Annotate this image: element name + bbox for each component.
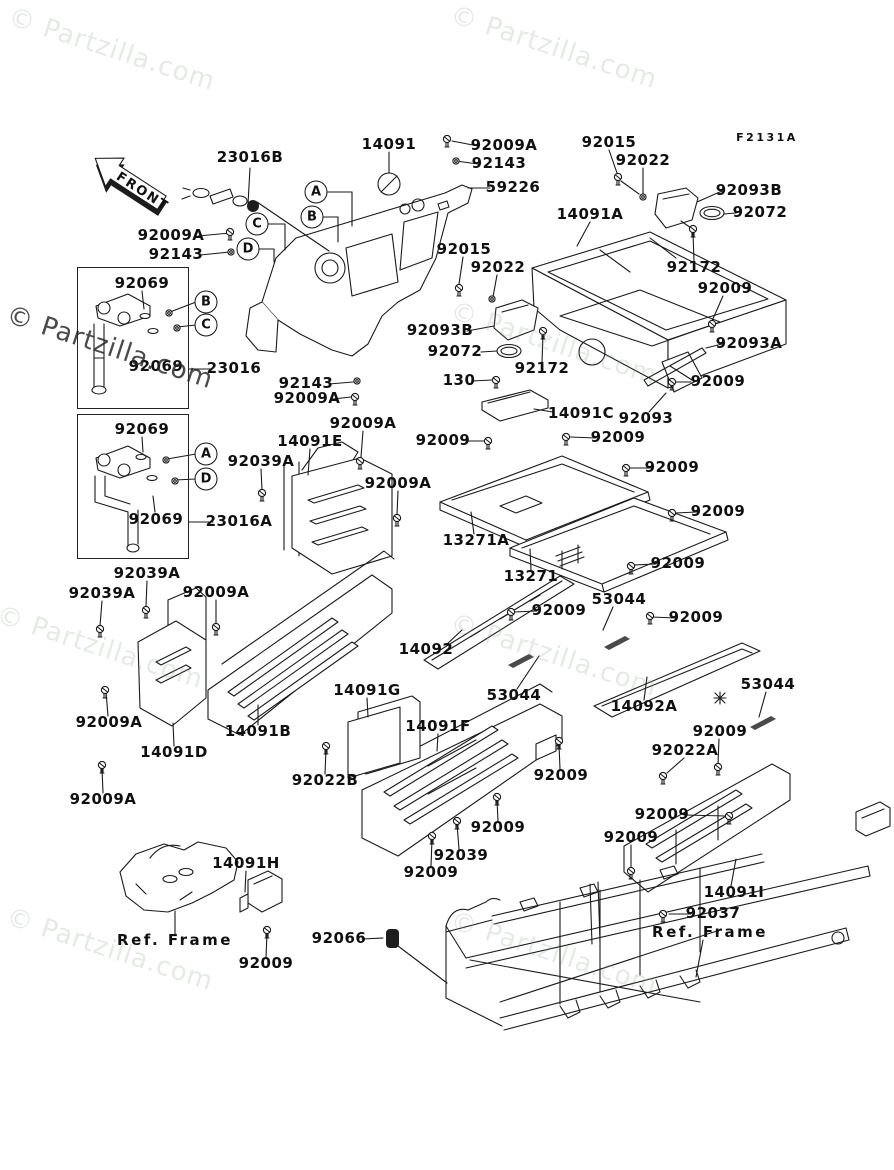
part-label-92009a: 92009A xyxy=(365,476,432,492)
part-label-53044: 53044 xyxy=(592,592,647,608)
callout-a: A xyxy=(195,443,218,466)
part-label-92039a: 92039A xyxy=(114,566,181,582)
part-label-92009: 92009 xyxy=(404,865,459,881)
callout-a: A xyxy=(305,181,328,204)
nut-icon xyxy=(228,249,234,255)
part-label-92069: 92069 xyxy=(129,512,184,528)
nut-icon xyxy=(453,158,459,164)
part-label-92009: 92009 xyxy=(669,610,724,626)
part-label-53044: 53044 xyxy=(487,688,542,704)
part-label-23016a: 23016A xyxy=(206,514,273,530)
screw-icon xyxy=(96,625,103,637)
callout-d: D xyxy=(237,238,260,261)
screw-icon xyxy=(614,173,621,185)
part-label-92009: 92009 xyxy=(604,830,659,846)
callout-c: C xyxy=(195,314,218,337)
part-label-92009a: 92009A xyxy=(330,416,397,432)
part-label-23016b: 23016B xyxy=(217,150,284,166)
part-label-92039a: 92039A xyxy=(69,586,136,602)
callout-d: D xyxy=(195,468,218,491)
part-label-14091e: 14091E xyxy=(277,434,342,450)
part-label-92093b: 92093B xyxy=(407,323,474,339)
part-14091h-bracket-art xyxy=(120,842,282,912)
screw-icon xyxy=(393,514,400,526)
part-label-92009: 92009 xyxy=(471,820,526,836)
part-label-92072: 92072 xyxy=(428,344,483,360)
part-label-130: 130 xyxy=(443,373,476,389)
part-label-14091d: 14091D xyxy=(140,745,208,761)
part-label-92009: 92009 xyxy=(416,433,471,449)
part-label-53044: 53044 xyxy=(741,677,796,693)
screw-icon xyxy=(443,135,450,147)
part-label-92009: 92009 xyxy=(691,504,746,520)
part-label-92009: 92009 xyxy=(645,460,700,476)
screw-icon xyxy=(226,228,233,240)
part-label-92009: 92009 xyxy=(591,430,646,446)
screw-icon xyxy=(258,489,265,501)
part-label-23016: 23016 xyxy=(207,361,262,377)
part-label-ref-frame: Ref. Frame xyxy=(117,933,233,949)
callout-c: C xyxy=(246,213,269,236)
part-label-92039a: 92039A xyxy=(228,454,295,470)
part-label-92009: 92009 xyxy=(534,768,589,784)
nut-icon xyxy=(489,296,495,302)
screw-icon xyxy=(659,910,666,922)
part-label-92143: 92143 xyxy=(472,156,527,172)
part-14091g-plate-art xyxy=(348,696,420,778)
part-label-92022: 92022 xyxy=(616,153,671,169)
part-label-92009a: 92009A xyxy=(76,715,143,731)
part-label-92039: 92039 xyxy=(434,848,489,864)
part-label-14091i: 14091I xyxy=(704,885,765,901)
part-92066-grommet-art xyxy=(386,929,399,948)
callout-b: B xyxy=(301,206,324,229)
screw-icon xyxy=(714,763,721,775)
part-label-14091h: 14091H xyxy=(212,856,280,872)
part-label-92015: 92015 xyxy=(437,242,492,258)
part-label-92009: 92009 xyxy=(693,724,748,740)
front-arrow: FRONT xyxy=(83,145,178,225)
part-label-92009: 92009 xyxy=(698,281,753,297)
part-label-92093: 92093 xyxy=(619,411,674,427)
part-label-13271: 13271 xyxy=(504,569,559,585)
callout-b: B xyxy=(195,291,218,314)
nut-icon xyxy=(640,194,646,200)
part-label-f2131a: F2131A xyxy=(736,132,798,144)
part-14091b-panel-art xyxy=(208,551,394,735)
part-label-92172: 92172 xyxy=(667,260,722,276)
part-label-92009a: 92009A xyxy=(471,138,538,154)
part-label-13271a: 13271A xyxy=(443,533,510,549)
part-14091e-cover-art xyxy=(284,442,392,574)
screw-icon xyxy=(484,437,491,449)
screw-icon xyxy=(492,376,499,388)
part-label-92066: 92066 xyxy=(312,931,367,947)
parts-diagram-page: FRONT xyxy=(0,0,894,1170)
screw-icon xyxy=(351,393,358,405)
part-label-92037: 92037 xyxy=(686,906,741,922)
part-label-92009: 92009 xyxy=(532,603,587,619)
part-14091a-tray-art xyxy=(532,232,786,388)
part-label-92072: 92072 xyxy=(733,205,788,221)
part-label-92009: 92009 xyxy=(635,807,690,823)
screw-icon xyxy=(659,772,666,784)
part-label-92022: 92022 xyxy=(471,260,526,276)
screw-icon xyxy=(101,686,108,698)
part-label-92022b: 92022B xyxy=(292,773,359,789)
part-23016b-cable-art xyxy=(182,188,259,212)
part-label-14091b: 14091B xyxy=(225,724,292,740)
screw-icon xyxy=(142,606,149,618)
part-label-92009: 92009 xyxy=(691,374,746,390)
part-label-92009a: 92009A xyxy=(70,792,137,808)
part-label-92093a: 92093A xyxy=(716,336,783,352)
part-label-92069: 92069 xyxy=(129,359,184,375)
screw-icon xyxy=(455,284,462,296)
part-label-92143: 92143 xyxy=(149,247,204,263)
part-label-14091g: 14091G xyxy=(333,683,401,699)
part-label-59226: 59226 xyxy=(486,180,541,196)
part-label-14091a: 14091A xyxy=(557,207,624,223)
part-label-14091f: 14091F xyxy=(405,719,470,735)
part-label-92172: 92172 xyxy=(515,361,570,377)
part-label-14091c: 14091C xyxy=(548,406,614,422)
part-label-92009a: 92009A xyxy=(274,391,341,407)
part-label-92069: 92069 xyxy=(115,276,170,292)
part-label-92009a: 92009A xyxy=(138,228,205,244)
part-label-14092a: 14092A xyxy=(611,699,678,715)
part-label-92009: 92009 xyxy=(651,556,706,572)
part-label-14091: 14091 xyxy=(362,137,417,153)
part-label-92009a: 92009A xyxy=(183,585,250,601)
screw-icon xyxy=(622,464,629,476)
nut-icon xyxy=(354,378,360,384)
part-label-14092: 14092 xyxy=(399,642,454,658)
part-label-92022a: 92022A xyxy=(652,743,719,759)
part-label-92009: 92009 xyxy=(239,956,294,972)
part-label-92093b: 92093B xyxy=(716,183,783,199)
screw-icon xyxy=(212,623,219,635)
part-14091c-cover-art xyxy=(482,390,548,421)
part-label-92069: 92069 xyxy=(115,422,170,438)
screw-icon xyxy=(646,612,653,624)
part-label-92015: 92015 xyxy=(582,135,637,151)
part-label-ref-frame: Ref. Frame xyxy=(652,925,768,941)
screw-icon xyxy=(562,433,569,445)
